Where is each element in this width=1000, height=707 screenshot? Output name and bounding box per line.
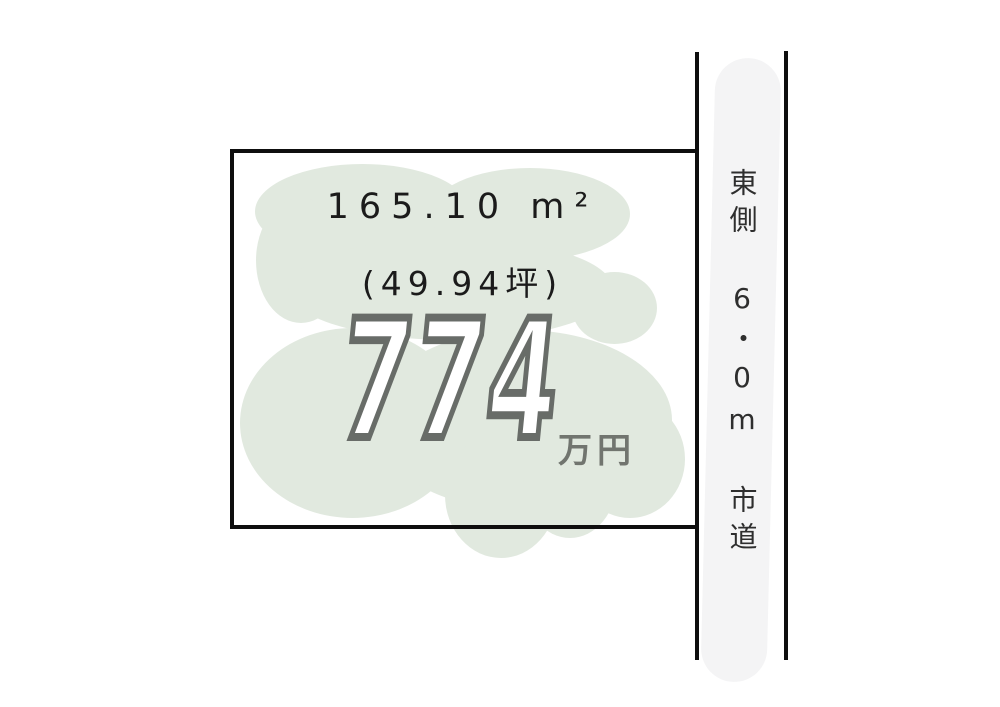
road-type-label: 市道 bbox=[728, 485, 756, 559]
plot-price-value: 774 bbox=[333, 299, 569, 463]
road-side-label: 東側 bbox=[728, 168, 756, 242]
road-right-boundary-line bbox=[784, 51, 788, 660]
road-label: 東側 6・0m 市道 bbox=[699, 168, 784, 559]
land-plot-diagram: 165.10 m² (49.94坪) 774 万円 東側 6・0m 市道 bbox=[0, 0, 1000, 707]
road-width-label: 6・0m bbox=[728, 282, 756, 445]
plot-price-unit: 万円 bbox=[558, 423, 636, 472]
plot-area-square-meters: 165.10 m² bbox=[230, 187, 695, 227]
